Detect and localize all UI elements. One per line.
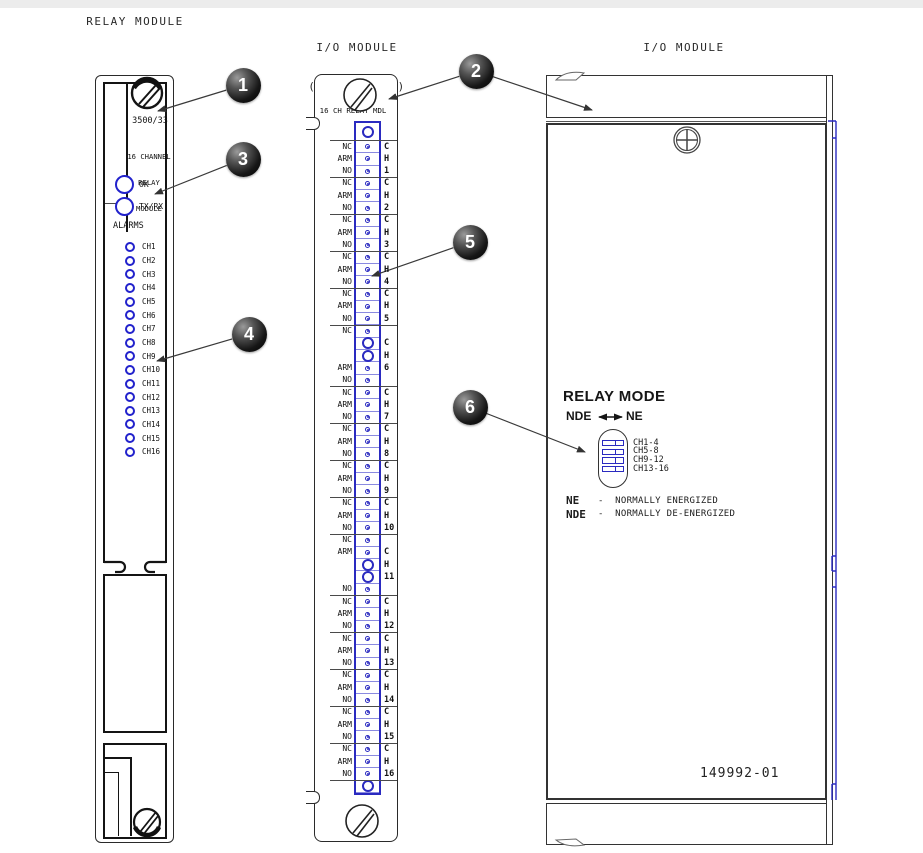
terminal-row — [356, 473, 379, 485]
alarm-led-ch5 — [125, 297, 135, 307]
title-io-side-line1: I/O MODULE — [614, 41, 754, 54]
terminal-row — [356, 436, 379, 448]
terminal-row — [356, 252, 379, 264]
terminal-point-icon — [365, 599, 370, 604]
terminal-row — [356, 682, 379, 694]
contact-label-arm-19: ARM — [314, 362, 352, 374]
contact-label-arm-11: ARM — [314, 264, 352, 276]
terminal-point-icon — [365, 747, 370, 752]
ok-led — [115, 175, 134, 194]
alarm-led-ch7 — [125, 324, 135, 334]
contact-label-no-20: NO — [314, 374, 352, 386]
dip-group-label-4: CH13-16 — [633, 465, 669, 474]
channel-4-letter-C: C — [384, 251, 404, 263]
callout-3: 3 — [226, 142, 261, 177]
contact-label-no-15: NO — [314, 313, 352, 325]
channel-15-letter-H: H — [384, 719, 404, 731]
contact-label-no-3: NO — [314, 165, 352, 177]
terminal-point-icon — [365, 452, 370, 457]
terminal-point-icon — [365, 612, 370, 617]
channel-13-letter-13: 13 — [384, 657, 404, 669]
channel-9-letter-C: C — [384, 460, 404, 472]
dip-switch-2 — [602, 449, 624, 455]
contact-label-nc-38: NC — [314, 596, 352, 608]
terminal-ring-row — [356, 123, 379, 141]
terminal-point-icon — [365, 144, 370, 149]
ring-terminal-icon — [362, 571, 374, 583]
legend-term-nde: NDE — [566, 508, 586, 521]
terminal-point-icon — [365, 722, 370, 727]
alarm-label-ch3: CH3 — [142, 270, 156, 279]
terminal-row — [356, 178, 379, 190]
contact-label-nc-33: NC — [314, 534, 352, 546]
terminal-point-icon — [365, 636, 370, 641]
channel-5-letter-C: C — [384, 288, 404, 300]
contact-label-no-6: NO — [314, 202, 352, 214]
terminal-row — [356, 547, 379, 559]
channel-12-letter-H: H — [384, 608, 404, 620]
channel-9-letter-9: 9 — [384, 485, 404, 497]
terminal-point-icon — [365, 624, 370, 629]
terminal-point-icon — [365, 501, 370, 506]
alarm-led-ch4 — [125, 283, 135, 293]
contact-label-arm-28: ARM — [314, 473, 352, 485]
terminal-point-icon — [365, 243, 370, 248]
channel-15-letter-C: C — [384, 706, 404, 718]
bottom-panel-line-v — [130, 757, 132, 836]
io-front-key-notch-top — [306, 117, 320, 130]
page-top-band — [0, 0, 923, 8]
terminal-point-icon — [365, 378, 370, 383]
relay-module-faceplate-lower — [103, 574, 167, 733]
channel-5-letter-H: H — [384, 300, 404, 312]
terminal-row — [356, 153, 379, 165]
contact-label-nc-44: NC — [314, 669, 352, 681]
contact-label-no-12: NO — [314, 276, 352, 288]
contact-label-arm-25: ARM — [314, 436, 352, 448]
terminal-ring-row — [356, 781, 379, 793]
contact-label-arm-22: ARM — [314, 399, 352, 411]
alarm-led-ch16 — [125, 447, 135, 457]
channel-6-letter-H: H — [384, 350, 404, 362]
contact-label-arm-51: ARM — [314, 756, 352, 768]
terminal-row — [356, 756, 379, 768]
ring-terminal-icon — [362, 780, 374, 792]
terminal-point-icon — [365, 366, 370, 371]
terminal-point-icon — [365, 402, 370, 407]
terminal-point-icon — [365, 550, 370, 555]
contact-label-arm-42: ARM — [314, 645, 352, 657]
contact-label-no-43: NO — [314, 657, 352, 669]
terminal-point-icon — [365, 181, 370, 186]
contact-label-no-23: NO — [314, 411, 352, 423]
channel-9-letter-H: H — [384, 473, 404, 485]
channel-14-letter-H: H — [384, 682, 404, 694]
channel-2-letter-C: C — [384, 177, 404, 189]
terminal-row — [356, 362, 379, 374]
contact-label-nc-21: NC — [314, 387, 352, 399]
channel-13-letter-C: C — [384, 633, 404, 645]
alarm-label-ch7: CH7 — [142, 324, 156, 333]
alarm-led-ch10 — [125, 365, 135, 375]
channel-3-letter-C: C — [384, 214, 404, 226]
terminal-row — [356, 190, 379, 202]
terminal-point-icon — [365, 685, 370, 690]
contact-label-no-26: NO — [314, 448, 352, 460]
terminal-row — [356, 141, 379, 153]
channel-6-letter-C: C — [384, 337, 404, 349]
channel-4-letter-4: 4 — [384, 276, 404, 288]
contact-label-nc-30: NC — [314, 497, 352, 509]
alarm-label-ch15: CH15 — [142, 434, 160, 443]
terminal-point-icon — [365, 648, 370, 653]
channel-7-letter-H: H — [384, 399, 404, 411]
callout-2: 2 — [459, 54, 494, 89]
terminal-ring-row — [356, 559, 379, 571]
terminal-row — [356, 719, 379, 731]
channel-10-letter-10: 10 — [384, 522, 404, 534]
terminal-row — [356, 289, 379, 301]
channel-1-letter-H: H — [384, 153, 404, 165]
part-number: 149992-01 — [700, 766, 779, 781]
terminal-point-icon — [365, 255, 370, 260]
contact-label-no-29: NO — [314, 485, 352, 497]
title-io-front-line1: I/O MODULE — [287, 41, 427, 54]
callout-5: 5 — [453, 225, 488, 260]
ok-led-label: OK — [139, 180, 149, 189]
dip-switch-4 — [602, 466, 624, 472]
channel-11-letter-11: 11 — [384, 571, 404, 583]
contact-label-arm-5: ARM — [314, 190, 352, 202]
contact-label-no-46: NO — [314, 694, 352, 706]
channel-7-letter-C: C — [384, 387, 404, 399]
nde-label: NDE — [566, 409, 591, 423]
io-side-bottom-flange — [546, 803, 827, 845]
terminal-point-icon — [365, 329, 370, 334]
contact-label-nc-24: NC — [314, 423, 352, 435]
terminal-point-icon — [365, 427, 370, 432]
contact-label-arm-39: ARM — [314, 608, 352, 620]
terminal-row — [356, 645, 379, 657]
terminal-strip — [354, 121, 381, 795]
terminal-point-icon — [365, 587, 370, 592]
terminal-point-icon — [365, 735, 370, 740]
terminal-ring-row — [356, 572, 379, 584]
io-side-body — [546, 123, 827, 800]
contact-label-nc-4: NC — [314, 177, 352, 189]
channel-12-letter-12: 12 — [384, 620, 404, 632]
legend-desc-nde: - NORMALLY DE-ENERGIZED — [598, 509, 735, 519]
terminal-ring-row — [356, 350, 379, 362]
channel-10-letter-C: C — [384, 497, 404, 509]
alarm-led-ch8 — [125, 338, 135, 348]
contact-label-no-9: NO — [314, 239, 352, 251]
dip-switch-3 — [602, 457, 624, 463]
alarm-label-ch13: CH13 — [142, 406, 160, 415]
terminal-point-icon — [365, 390, 370, 395]
ring-terminal-icon — [362, 350, 374, 362]
channel-2-letter-H: H — [384, 190, 404, 202]
contact-label-no-32: NO — [314, 522, 352, 534]
terminal-point-icon — [365, 759, 370, 764]
contact-label-arm-48: ARM — [314, 719, 352, 731]
bottom-panel-line-h1 — [104, 757, 130, 759]
contact-label-nc-7: NC — [314, 214, 352, 226]
relay-mode-title: RELAY MODE — [563, 388, 665, 405]
channel-5-letter-5: 5 — [384, 313, 404, 325]
terminal-row — [356, 670, 379, 682]
contact-label-arm-45: ARM — [314, 682, 352, 694]
module-model-number: 3500/33 — [128, 116, 172, 126]
io-side-top-double-line — [546, 121, 827, 122]
channel-3-letter-3: 3 — [384, 239, 404, 251]
alarm-label-ch16: CH16 — [142, 447, 160, 456]
ring-terminal-icon — [362, 337, 374, 349]
callout-6: 6 — [453, 390, 488, 425]
callout-4: 4 — [232, 317, 267, 352]
alarm-label-ch9: CH9 — [142, 352, 156, 361]
contact-label-arm-31: ARM — [314, 510, 352, 522]
terminal-point-icon — [365, 206, 370, 211]
terminal-row — [356, 461, 379, 473]
channel-2-letter-2: 2 — [384, 202, 404, 214]
channel-1-letter-C: C — [384, 141, 404, 153]
alarm-led-ch1 — [125, 242, 135, 252]
terminal-point-icon — [365, 525, 370, 530]
alarm-label-ch14: CH14 — [142, 420, 160, 429]
channel-14-letter-C: C — [384, 669, 404, 681]
channel-8-letter-8: 8 — [384, 448, 404, 460]
terminal-point-icon — [365, 476, 370, 481]
bottom-panel-line-v2 — [118, 772, 119, 836]
contact-label-no-52: NO — [314, 768, 352, 780]
channel-4-letter-H: H — [384, 264, 404, 276]
terminal-row — [356, 424, 379, 436]
alarm-led-ch2 — [125, 256, 135, 266]
channel-11-letter-H: H — [384, 559, 404, 571]
terminal-point-icon — [365, 304, 370, 309]
terminal-point-icon — [365, 710, 370, 715]
contact-label-nc-50: NC — [314, 743, 352, 755]
channel-16-letter-C: C — [384, 743, 404, 755]
alarm-led-ch13 — [125, 406, 135, 416]
channel-7-letter-7: 7 — [384, 411, 404, 423]
legend-term-ne: NE — [566, 494, 579, 507]
terminal-row — [356, 399, 379, 411]
channel-11-letter-C: C — [384, 546, 404, 558]
io-side-top-flange — [546, 75, 827, 118]
terminal-point-icon — [365, 415, 370, 420]
legend-desc-ne: - NORMALLY ENERGIZED — [598, 496, 718, 506]
io-front-header: 16 CH RELAY MDL — [306, 106, 400, 115]
channel-1-letter-1: 1 — [384, 165, 404, 177]
contact-label-no-40: NO — [314, 620, 352, 632]
channel-16-letter-16: 16 — [384, 768, 404, 780]
contact-label-nc-41: NC — [314, 633, 352, 645]
terminal-point-icon — [365, 698, 370, 703]
channel-3-letter-H: H — [384, 227, 404, 239]
contact-label-no-37: NO — [314, 583, 352, 595]
alarm-label-ch11: CH11 — [142, 379, 160, 388]
channel-13-letter-H: H — [384, 645, 404, 657]
terminal-ring-row — [356, 338, 379, 350]
alarm-label-ch1: CH1 — [142, 242, 156, 251]
channel-8-letter-C: C — [384, 423, 404, 435]
terminal-point-icon — [365, 218, 370, 223]
terminal-point-icon — [365, 538, 370, 543]
terminal-row — [356, 498, 379, 510]
ring-terminal-icon — [362, 559, 374, 571]
terminal-row — [356, 744, 379, 756]
contact-label-no-49: NO — [314, 731, 352, 743]
io-front-key-notch-bottom — [306, 791, 320, 804]
terminal-row — [356, 326, 379, 338]
alarm-label-ch12: CH12 — [142, 393, 160, 402]
channel-12-letter-C: C — [384, 596, 404, 608]
channel-15-letter-15: 15 — [384, 731, 404, 743]
dip-switch-1 — [602, 440, 624, 446]
terminal-row — [356, 264, 379, 276]
terminal-row — [356, 301, 379, 313]
txrx-led — [115, 197, 134, 216]
txrx-led-label: TX/RX — [139, 202, 163, 211]
title-relay-module: RELAY MODULE — [65, 15, 205, 28]
ring-terminal-icon — [362, 126, 374, 138]
terminal-point-icon — [365, 169, 370, 174]
terminal-row — [356, 535, 379, 547]
terminal-row — [356, 633, 379, 645]
contact-label-nc-47: NC — [314, 706, 352, 718]
contact-label-arm-2: ARM — [314, 153, 352, 165]
terminal-row — [356, 215, 379, 227]
alarm-label-ch10: CH10 — [142, 365, 160, 374]
alarm-label-ch6: CH6 — [142, 311, 156, 320]
bottom-panel-line-h2 — [104, 772, 118, 773]
contact-label-nc-1: NC — [314, 141, 352, 153]
contact-label-arm-8: ARM — [314, 227, 352, 239]
alarm-led-ch11 — [125, 379, 135, 389]
io-side-edge-bar — [826, 75, 833, 845]
contact-label-nc-16: NC — [314, 325, 352, 337]
contact-label-nc-13: NC — [314, 288, 352, 300]
terminal-point-icon — [365, 193, 370, 198]
drawing-sheet: RELAY MODULE I/O MODULE (FRONT VIEW) I/O… — [0, 0, 923, 853]
channel-14-letter-14: 14 — [384, 694, 404, 706]
terminal-row — [356, 608, 379, 620]
terminal-point-icon — [365, 230, 370, 235]
terminal-point-icon — [365, 513, 370, 518]
terminal-row — [356, 387, 379, 399]
contact-label-nc-27: NC — [314, 460, 352, 472]
terminal-point-icon — [365, 673, 370, 678]
terminal-point-icon — [365, 661, 370, 666]
callout-1: 1 — [226, 68, 261, 103]
channel-6-letter-6: 6 — [384, 362, 404, 374]
contact-label-arm-14: ARM — [314, 300, 352, 312]
terminal-point-icon — [365, 267, 370, 272]
terminal-row — [356, 596, 379, 608]
terminal-point-icon — [365, 439, 370, 444]
contact-label-nc-10: NC — [314, 251, 352, 263]
module-name-line1: 16 CHANNEL — [126, 153, 172, 162]
channel-8-letter-H: H — [384, 436, 404, 448]
terminal-point-icon — [365, 316, 370, 321]
terminal-point-icon — [365, 279, 370, 284]
ne-label: NE — [626, 409, 643, 423]
terminal-point-icon — [365, 464, 370, 469]
alarm-label-ch4: CH4 — [142, 283, 156, 292]
alarms-label: ALARMS — [113, 221, 144, 231]
terminal-point-icon — [365, 156, 370, 161]
channel-10-letter-H: H — [384, 510, 404, 522]
terminal-point-icon — [365, 771, 370, 776]
terminal-point-icon — [365, 292, 370, 297]
alarm-label-ch5: CH5 — [142, 297, 156, 306]
terminal-point-icon — [365, 489, 370, 494]
channel-16-letter-H: H — [384, 756, 404, 768]
terminal-row — [356, 227, 379, 239]
alarm-label-ch2: CH2 — [142, 256, 156, 265]
terminal-row — [356, 510, 379, 522]
terminal-row — [356, 707, 379, 719]
contact-label-arm-34: ARM — [314, 546, 352, 558]
alarm-label-ch8: CH8 — [142, 338, 156, 347]
